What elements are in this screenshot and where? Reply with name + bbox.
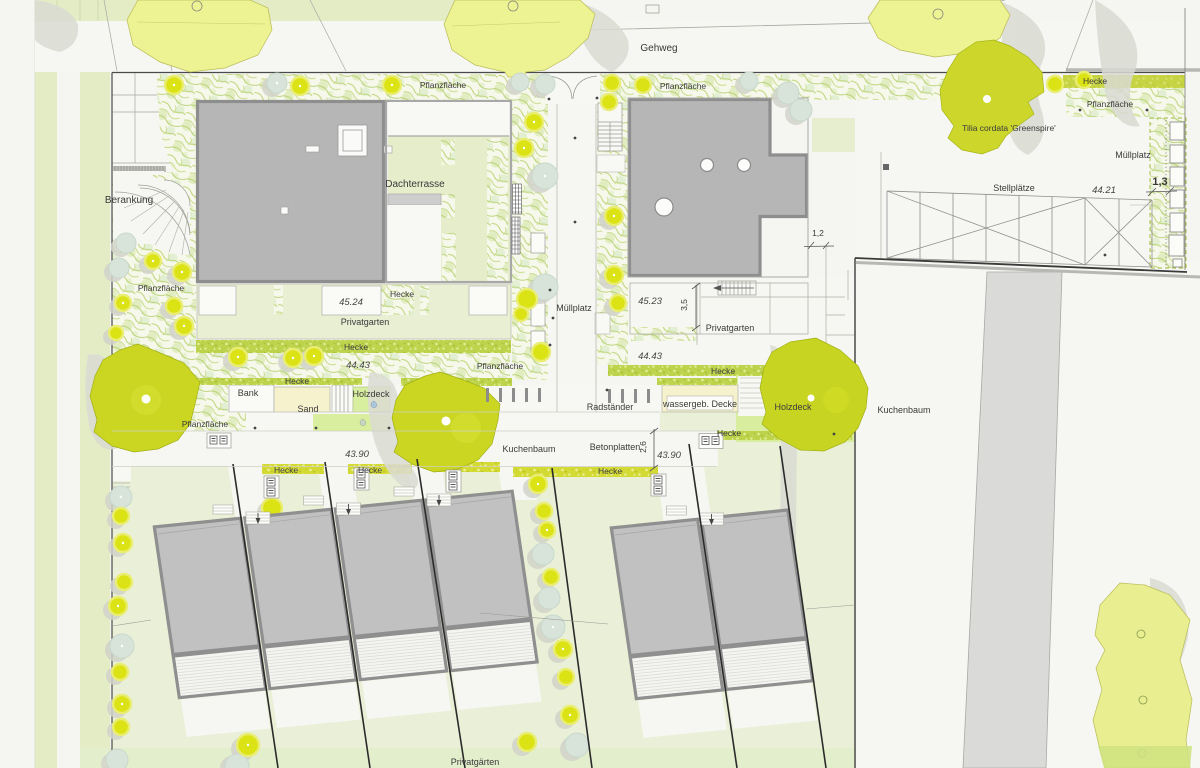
svg-text:Pflanzfläche: Pflanzfläche xyxy=(138,283,185,293)
svg-text:Bank: Bank xyxy=(238,388,259,398)
svg-text:44.21: 44.21 xyxy=(1092,185,1116,196)
svg-text:43.90: 43.90 xyxy=(345,449,369,460)
svg-text:Betonplatten: Betonplatten xyxy=(590,442,641,452)
svg-text:Hecke: Hecke xyxy=(711,366,735,376)
svg-text:Pflanzfläche: Pflanzfläche xyxy=(1087,99,1134,109)
svg-text:Privatgärten: Privatgärten xyxy=(451,757,500,767)
svg-text:44.43: 44.43 xyxy=(346,360,370,371)
svg-text:Hecke: Hecke xyxy=(344,342,368,352)
svg-text:Gehweg: Gehweg xyxy=(640,43,677,54)
svg-text:Stellplätze: Stellplätze xyxy=(993,183,1035,193)
svg-text:45.24: 45.24 xyxy=(339,297,363,308)
svg-text:Hecke: Hecke xyxy=(358,465,382,475)
svg-text:Holzdeck: Holzdeck xyxy=(352,389,390,399)
svg-text:1,3: 1,3 xyxy=(1152,176,1167,188)
svg-text:Kuchenbaum: Kuchenbaum xyxy=(502,444,555,454)
svg-text:44.43: 44.43 xyxy=(638,351,662,362)
svg-text:Kuchenbaum: Kuchenbaum xyxy=(877,405,930,415)
svg-text:Müllplatz: Müllplatz xyxy=(556,303,592,313)
svg-text:Pflanzfläche: Pflanzfläche xyxy=(182,419,229,429)
svg-text:Pflanzfläche: Pflanzfläche xyxy=(477,361,524,371)
svg-text:3,5: 3,5 xyxy=(679,299,689,311)
svg-text:45.23: 45.23 xyxy=(638,296,662,307)
svg-text:Privatgarten: Privatgarten xyxy=(341,317,390,327)
svg-text:Tilia cordata 'Greenspire': Tilia cordata 'Greenspire' xyxy=(962,123,1056,133)
svg-text:Berankung: Berankung xyxy=(105,195,153,206)
svg-text:Hecke: Hecke xyxy=(274,465,298,475)
svg-text:2,6: 2,6 xyxy=(638,441,648,453)
svg-text:Radständer: Radständer xyxy=(587,402,634,412)
svg-text:Hecke: Hecke xyxy=(390,289,414,299)
svg-text:Dachterrasse: Dachterrasse xyxy=(385,179,445,190)
svg-text:Pflanzfläche: Pflanzfläche xyxy=(660,81,707,91)
svg-text:Hecke: Hecke xyxy=(1083,76,1107,86)
svg-text:Sand: Sand xyxy=(297,404,318,414)
svg-text:43.90: 43.90 xyxy=(657,450,681,461)
svg-text:Pflanzfläche: Pflanzfläche xyxy=(420,80,467,90)
svg-text:Privatgarten: Privatgarten xyxy=(706,323,755,333)
svg-text:1,2: 1,2 xyxy=(812,228,824,238)
svg-text:Hecke: Hecke xyxy=(717,428,741,438)
svg-text:wassergeb. Decke: wassergeb. Decke xyxy=(662,399,737,409)
svg-text:Müllplatz: Müllplatz xyxy=(1115,150,1151,160)
svg-text:Holzdeck: Holzdeck xyxy=(774,402,812,412)
svg-text:Hecke: Hecke xyxy=(285,376,309,386)
svg-text:Hecke: Hecke xyxy=(598,466,622,476)
